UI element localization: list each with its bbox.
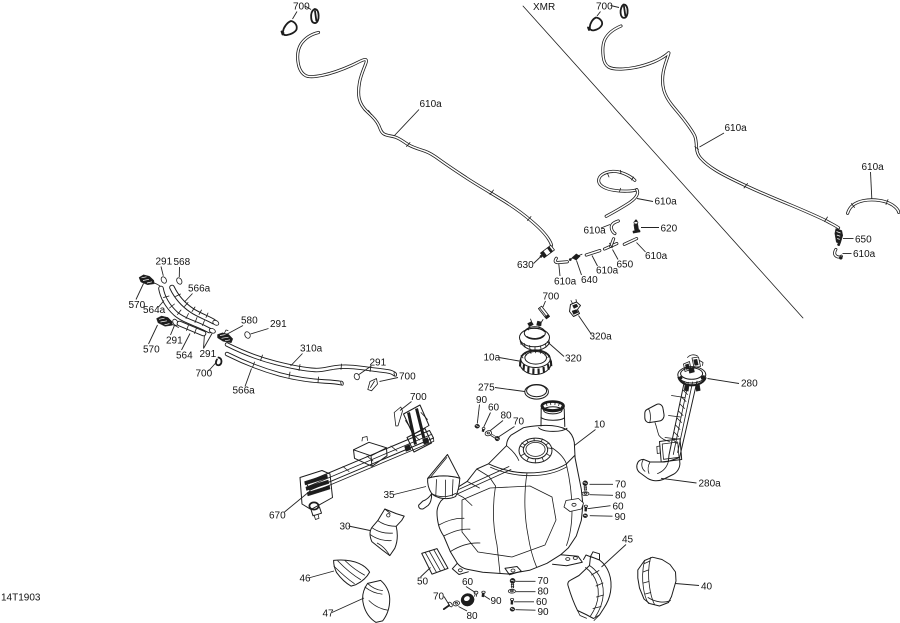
svg-text:280: 280 xyxy=(741,379,758,390)
svg-text:80: 80 xyxy=(538,587,550,598)
svg-text:60: 60 xyxy=(613,502,625,513)
svg-text:640: 640 xyxy=(581,275,598,286)
svg-text:610a: 610a xyxy=(420,99,443,110)
svg-text:630: 630 xyxy=(517,260,534,271)
svg-text:291: 291 xyxy=(270,319,287,330)
svg-text:80: 80 xyxy=(501,411,513,422)
svg-text:90: 90 xyxy=(491,596,503,607)
svg-text:568: 568 xyxy=(174,257,191,268)
svg-text:291: 291 xyxy=(156,257,173,268)
svg-text:70: 70 xyxy=(615,480,627,491)
svg-text:45: 45 xyxy=(622,535,634,546)
svg-text:610a: 610a xyxy=(596,266,619,277)
svg-text:310a: 310a xyxy=(300,344,323,355)
svg-text:80: 80 xyxy=(467,611,479,622)
svg-text:610a: 610a xyxy=(853,249,876,260)
svg-text:90: 90 xyxy=(538,607,550,618)
svg-text:291: 291 xyxy=(370,358,387,369)
svg-text:90: 90 xyxy=(615,512,627,523)
svg-text:610a: 610a xyxy=(554,277,577,288)
svg-text:10: 10 xyxy=(594,420,606,431)
svg-text:650: 650 xyxy=(617,260,634,271)
svg-text:570: 570 xyxy=(143,345,160,356)
svg-text:610a: 610a xyxy=(725,123,748,134)
svg-text:70: 70 xyxy=(513,417,525,428)
svg-text:10a: 10a xyxy=(484,353,501,364)
svg-text:700: 700 xyxy=(196,369,213,380)
svg-text:50: 50 xyxy=(417,577,429,588)
svg-text:60: 60 xyxy=(462,577,474,588)
svg-text:70: 70 xyxy=(433,592,445,603)
svg-text:700: 700 xyxy=(596,2,613,13)
svg-text:320: 320 xyxy=(565,354,582,365)
svg-text:566a: 566a xyxy=(188,284,211,295)
svg-text:700: 700 xyxy=(399,372,416,383)
svg-text:320a: 320a xyxy=(590,332,613,343)
svg-text:47: 47 xyxy=(323,609,335,620)
svg-text:620: 620 xyxy=(661,224,678,235)
svg-text:566a: 566a xyxy=(233,386,256,397)
svg-text:610a: 610a xyxy=(645,251,668,262)
svg-text:610a: 610a xyxy=(862,162,885,173)
svg-text:46: 46 xyxy=(300,574,312,585)
svg-text:XMR: XMR xyxy=(533,2,555,13)
svg-text:90: 90 xyxy=(476,395,488,406)
svg-text:70: 70 xyxy=(538,576,550,587)
svg-text:700: 700 xyxy=(543,292,560,303)
svg-text:275: 275 xyxy=(478,383,495,394)
svg-text:700: 700 xyxy=(410,392,427,403)
svg-text:80: 80 xyxy=(615,491,627,502)
svg-text:650: 650 xyxy=(855,235,872,246)
svg-text:35: 35 xyxy=(384,490,396,501)
svg-text:610a: 610a xyxy=(655,197,678,208)
svg-text:14T1903: 14T1903 xyxy=(1,593,41,604)
svg-text:670: 670 xyxy=(269,511,286,522)
svg-text:580: 580 xyxy=(241,316,258,327)
svg-text:291: 291 xyxy=(200,349,217,360)
svg-text:30: 30 xyxy=(340,522,352,533)
svg-text:564a: 564a xyxy=(143,305,166,316)
svg-text:40: 40 xyxy=(701,582,713,593)
svg-text:60: 60 xyxy=(488,403,500,414)
svg-text:280a: 280a xyxy=(699,479,722,490)
svg-text:291: 291 xyxy=(166,336,183,347)
svg-text:564: 564 xyxy=(176,351,193,362)
